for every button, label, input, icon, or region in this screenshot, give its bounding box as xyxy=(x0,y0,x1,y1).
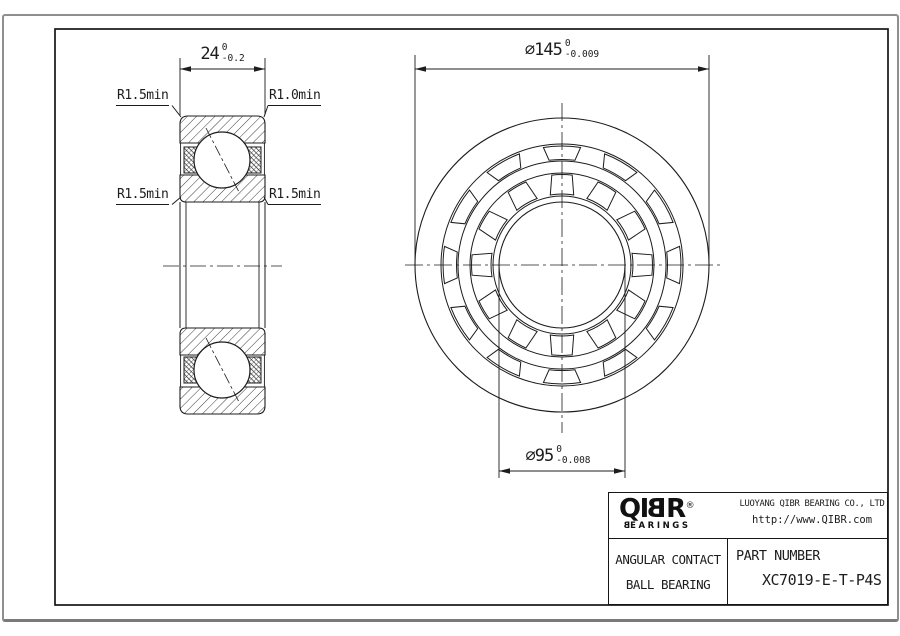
front-view xyxy=(405,55,722,478)
company-logo: QIBR® BEARINGS xyxy=(609,493,737,538)
arrowhead xyxy=(180,66,191,72)
tolerance-lower: -0.008 xyxy=(556,456,590,467)
title-block-detail-row: ANGULAR CONTACT BALL BEARING PART NUMBER… xyxy=(609,539,887,605)
radius-label-top-right: R1.0min xyxy=(268,89,321,106)
radius-label-mid-left: R1.5min xyxy=(116,188,169,205)
product-type-line2: BALL BEARING xyxy=(609,572,727,597)
radius-label-top-left: R1.5min xyxy=(116,89,169,106)
part-number-cell: PART NUMBER XC7019-E-T-P4S xyxy=(728,539,887,605)
bore-diameter-dimension-text: ⌀95 0 -0.008 xyxy=(458,443,658,465)
outer-diameter-dimension-text: ⌀145 0 -0.009 xyxy=(462,37,662,59)
part-number-label: PART NUMBER xyxy=(736,548,887,564)
product-type-line1: ANGULAR CONTACT xyxy=(609,547,727,572)
company-website: http://www.QIBR.com xyxy=(737,514,887,526)
tolerance-lower: -0.009 xyxy=(565,50,599,61)
arrowhead xyxy=(698,66,709,72)
registered-trademark-icon: ® xyxy=(686,501,695,511)
ball-bottom-section xyxy=(194,342,250,398)
tolerance-lower: -0.2 xyxy=(222,54,245,65)
width-dimension-lines xyxy=(180,58,265,115)
arrowhead xyxy=(415,66,426,72)
logo-subtitle: BEARINGS xyxy=(621,521,737,531)
title-block: QIBR® BEARINGS LUOYANG QIBR BEARING CO.,… xyxy=(608,492,888,605)
logo-wordmark: QIBR® xyxy=(619,496,737,522)
company-name: LUOYANG QIBR BEARING CO., LTD xyxy=(737,499,887,509)
ball-top-section xyxy=(194,132,250,188)
section-view xyxy=(163,58,282,414)
arrowhead xyxy=(254,66,265,72)
width-dimension-text: 24 0 -0.2 xyxy=(180,41,265,63)
title-block-header-row: QIBR® BEARINGS LUOYANG QIBR BEARING CO.,… xyxy=(609,493,887,539)
company-info: LUOYANG QIBR BEARING CO., LTD http://www… xyxy=(737,493,887,538)
part-number-value: XC7019-E-T-P4S xyxy=(762,571,887,589)
product-type-cell: ANGULAR CONTACT BALL BEARING xyxy=(609,539,728,605)
engineering-drawing-page: 24 0 -0.2 ⌀145 0 -0.009 ⌀95 0 -0.008 R1.… xyxy=(0,0,900,636)
radius-label-mid-right: R1.5min xyxy=(268,188,321,205)
arrowhead xyxy=(614,468,625,474)
arrowhead xyxy=(499,468,510,474)
